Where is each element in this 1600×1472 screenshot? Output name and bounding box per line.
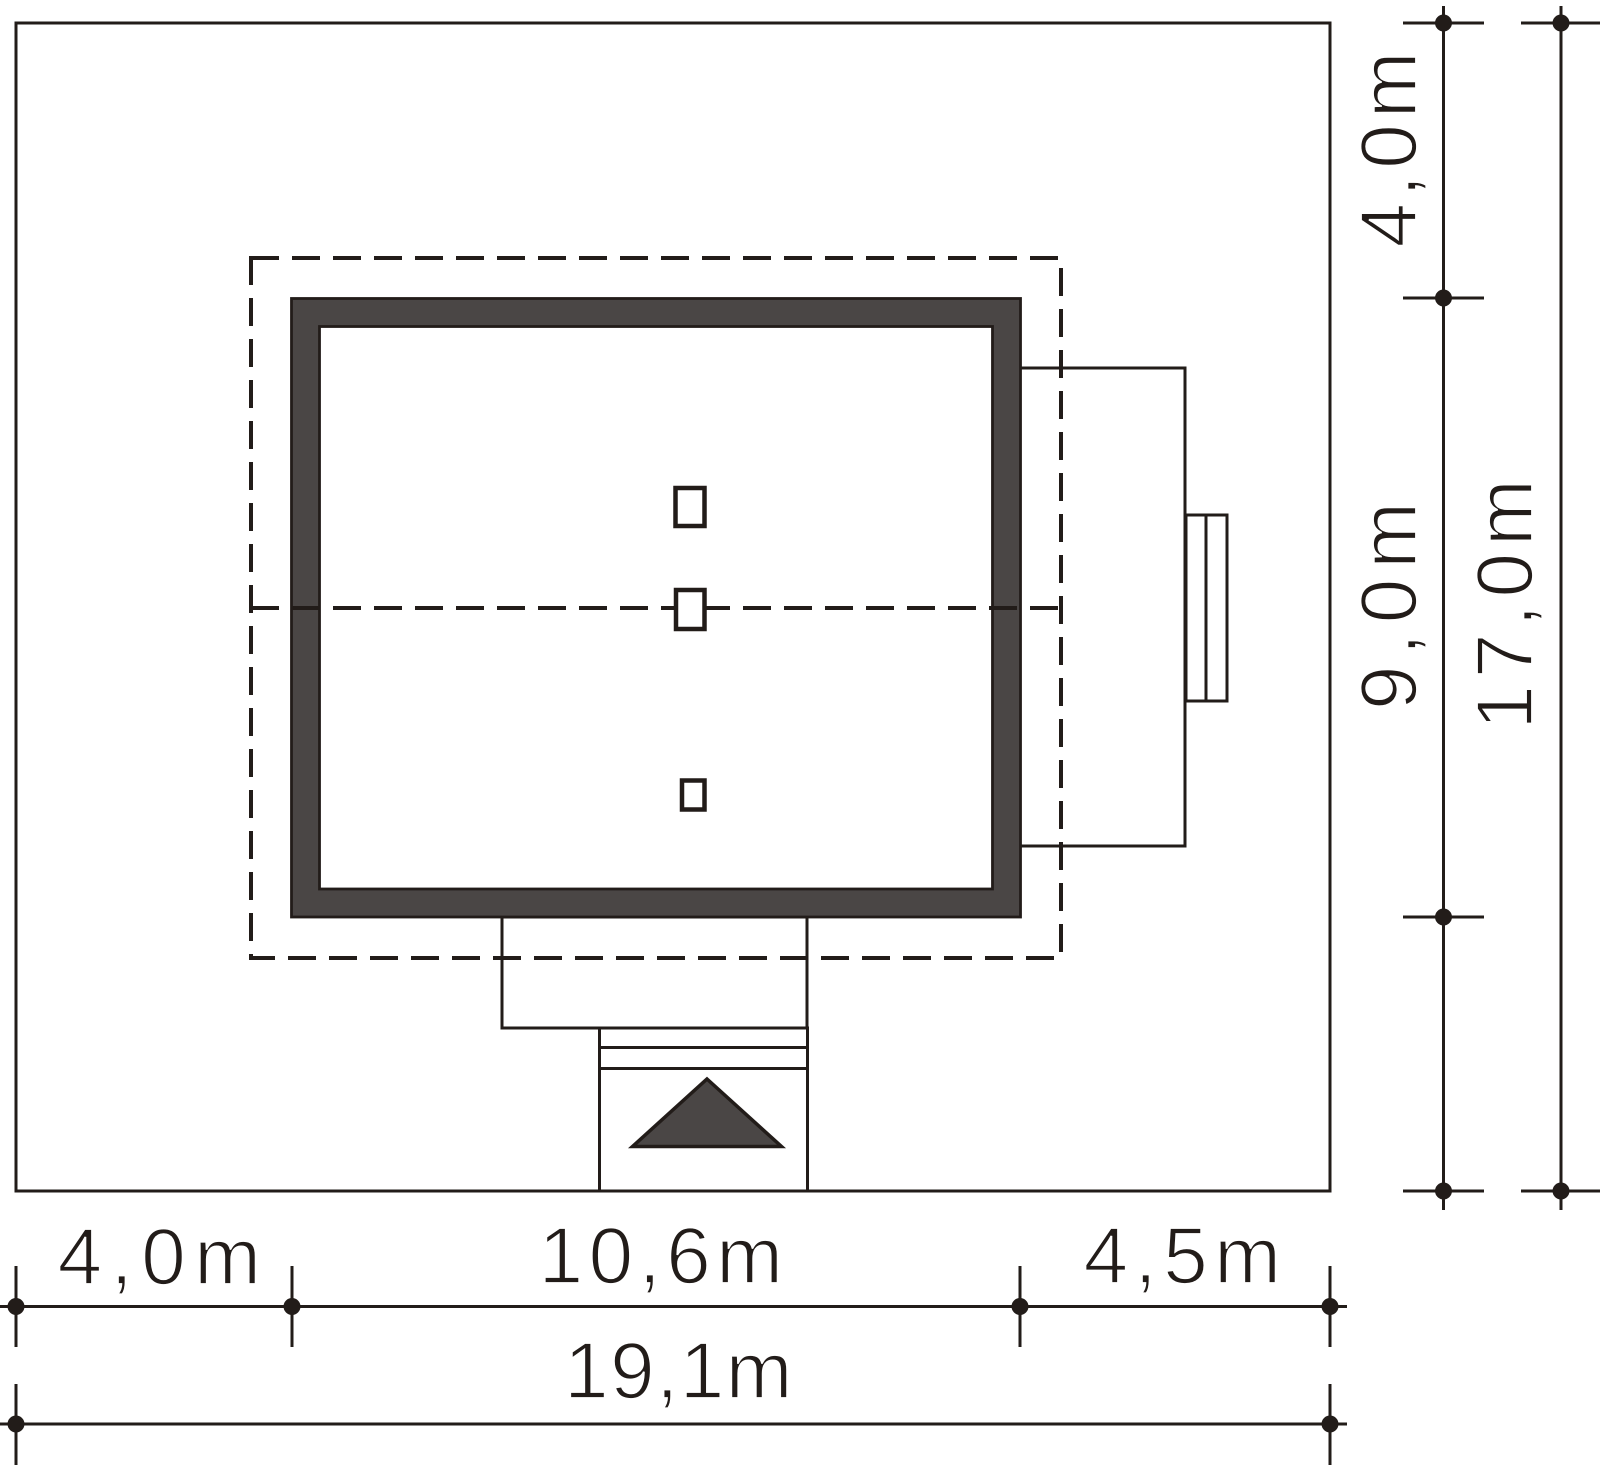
svg-text:19,1m: 19,1m <box>564 1326 794 1415</box>
svg-text:9,0m: 9,0m <box>1344 492 1433 710</box>
svg-text:17,0m: 17,0m <box>1460 472 1549 729</box>
svg-text:4,0m: 4,0m <box>1344 46 1433 248</box>
svg-text:4,5m: 4,5m <box>1084 1211 1288 1300</box>
svg-text:4,0m: 4,0m <box>58 1212 270 1301</box>
svg-text:10,6m: 10,6m <box>539 1211 789 1300</box>
